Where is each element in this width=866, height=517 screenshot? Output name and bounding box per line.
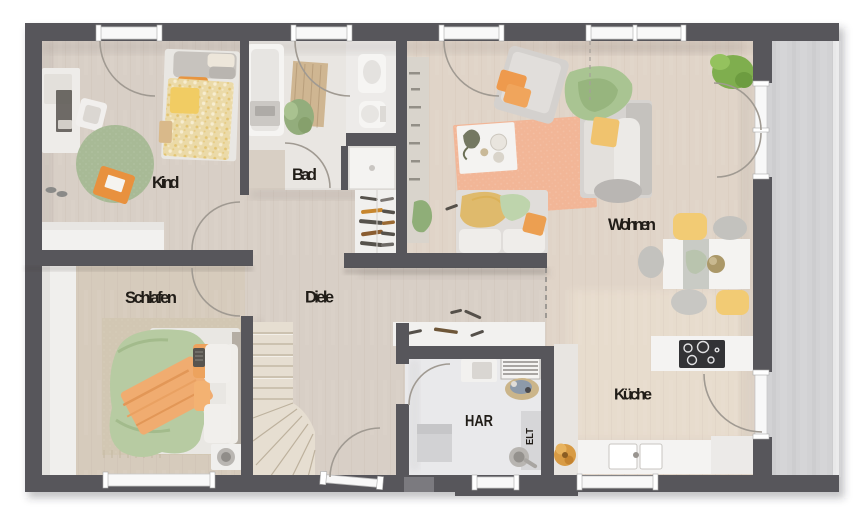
svg-text:Kind: Kind [152,174,180,192]
svg-text:Bad: Bad [292,166,317,184]
svg-text:Küche: Küche [614,387,652,404]
svg-text:ELT: ELT [524,427,536,445]
svg-text:HAR: HAR [465,413,493,430]
svg-text:Diele: Diele [305,289,334,307]
svg-text:Wohnen: Wohnen [608,216,656,234]
svg-text:Schlafen: Schlafen [125,289,177,307]
